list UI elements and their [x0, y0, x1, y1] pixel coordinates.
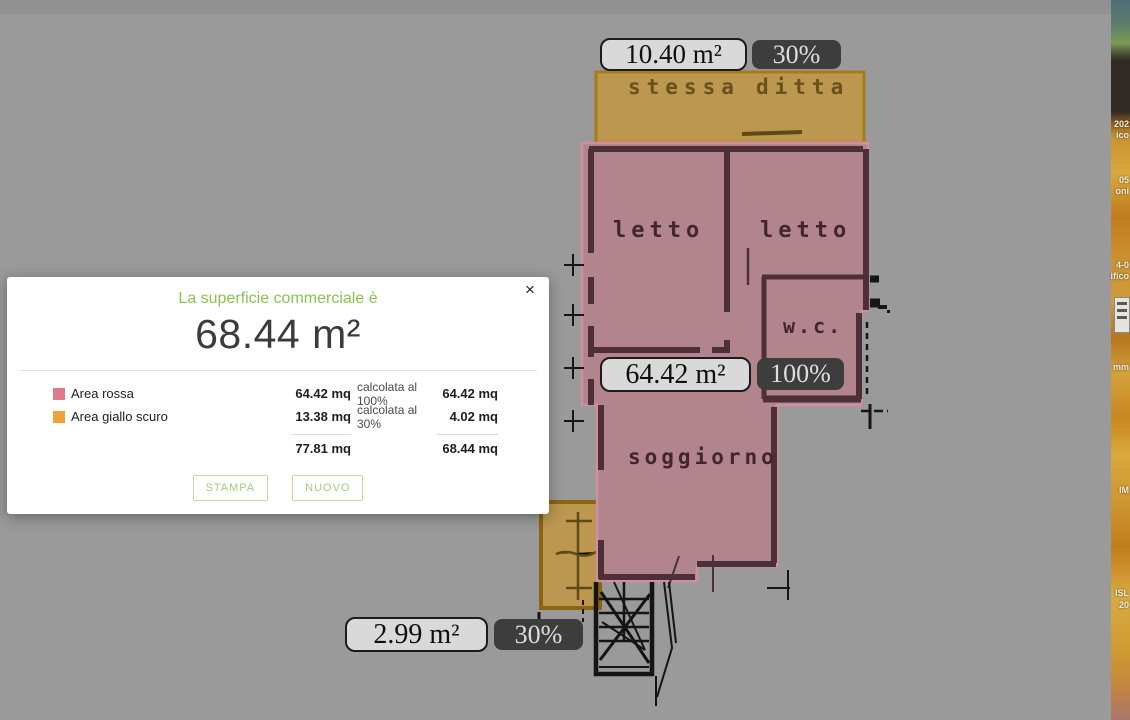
totals-row: 77.81 mq 68.44 mq	[53, 434, 498, 456]
background-window-sliver[interactable]: 202 ico 05 oni 4-0 ifico mm IM ISL 20	[1111, 0, 1130, 720]
area-row-qty: 13.38 mq	[291, 409, 351, 424]
area-row-label: Area giallo scuro	[71, 409, 291, 424]
area-value-pill[interactable]: 10.40 m²	[600, 38, 747, 71]
area-row-result: 64.42 mq	[437, 386, 498, 401]
staircase-drawing	[596, 582, 676, 706]
area-row-calc: calcolata al 30%	[351, 403, 437, 431]
strip-text-fragment: mm	[1113, 362, 1129, 372]
strip-text-fragment: ico	[1116, 130, 1129, 140]
percent-pill[interactable]: 100%	[757, 358, 844, 390]
strip-text-fragment: IM	[1119, 485, 1129, 495]
area-row-label: Area rossa	[71, 386, 291, 401]
nuovo-button[interactable]: NUOVO	[292, 475, 363, 501]
area-value-pill[interactable]: 2.99 m²	[345, 617, 488, 652]
strip-text-fragment: oni	[1116, 186, 1130, 196]
marker-balcony-top[interactable]: 10.40 m² 30%	[600, 38, 841, 71]
balcony-note-word2: ditta	[756, 75, 849, 99]
strip-text-fragment: ifico	[1110, 271, 1129, 281]
area-row-giallo: Area giallo scuro 13.38 mq calcolata al …	[53, 405, 498, 428]
result-dialog: × La superficie commerciale è 68.44 m² A…	[7, 277, 549, 514]
room-label-wc: w.c.	[783, 314, 843, 338]
room-label-letto-right: letto	[760, 218, 851, 243]
percent-pill[interactable]: 30%	[494, 619, 583, 650]
stampa-button[interactable]: STAMPA	[193, 475, 269, 501]
strip-text-fragment: 4-0	[1116, 260, 1129, 270]
area-row-result: 4.02 mq	[437, 409, 498, 424]
area-value-pill[interactable]: 64.42 m²	[600, 357, 751, 392]
strip-text-fragment: ISL	[1115, 588, 1129, 598]
balcony-note-word1: stessa	[628, 75, 740, 99]
total-qty: 77.81 mq	[291, 434, 351, 456]
marker-main-area[interactable]: 64.42 m² 100%	[600, 357, 844, 392]
marker-balcony-left[interactable]: 2.99 m² 30%	[345, 617, 583, 652]
percent-pill[interactable]: 30%	[752, 40, 841, 69]
pink-swatch	[53, 388, 65, 400]
room-label-letto-left: letto	[613, 218, 704, 243]
close-icon[interactable]: ×	[520, 280, 540, 300]
area-row-qty: 64.42 mq	[291, 386, 351, 401]
total-result: 68.44 mq	[437, 434, 498, 456]
qr-code-fragment	[1114, 297, 1130, 333]
dialog-title: La superficie commerciale è	[7, 290, 549, 308]
orange-swatch	[53, 411, 65, 423]
total-surface-value: 68.44 m²	[7, 311, 549, 358]
room-label-soggiorno: soggiorno	[628, 445, 778, 469]
strip-text-fragment: 20	[1119, 600, 1129, 610]
plan-smudge	[742, 132, 802, 134]
strip-text-fragment: 05	[1119, 175, 1129, 185]
strip-text-fragment: 202	[1114, 119, 1129, 129]
